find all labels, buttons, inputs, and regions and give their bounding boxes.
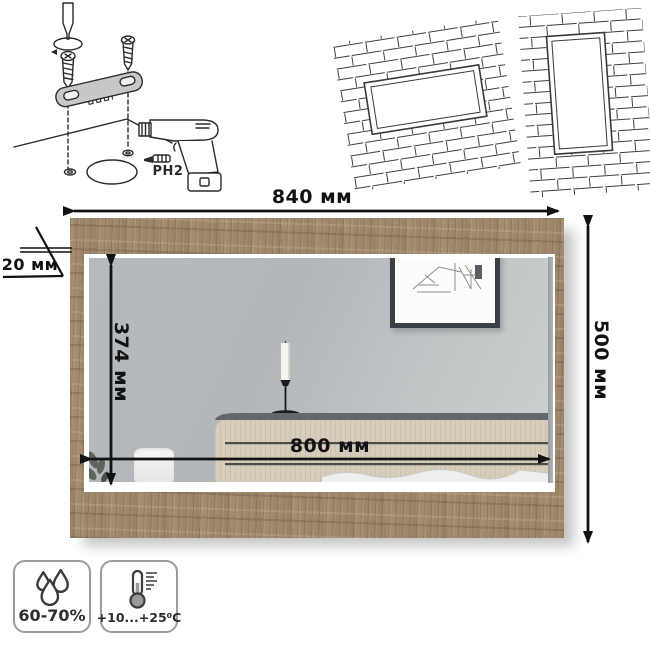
dimension-overall-width: 840 мм [232, 186, 392, 208]
product-diagram: 840 мм 500 мм 374 мм 800 мм 20 мм PH2 60… [0, 0, 650, 650]
temperature-badge: +10...+25⁰C [100, 560, 178, 633]
drill-bit-label: PH2 [146, 164, 190, 179]
humidity-value: 60-70% [18, 606, 85, 625]
dimension-frame-depth: 20 мм [1, 256, 59, 274]
humidity-badge: 60-70% [13, 560, 91, 633]
water-drops-icon [30, 569, 74, 606]
dimension-glass-width: 800 мм [250, 435, 410, 457]
temperature-value: +10...+25⁰C [97, 610, 182, 625]
thermometer-icon [117, 569, 161, 609]
dimension-lines [0, 0, 650, 650]
dimension-overall-height: 500 мм [590, 316, 612, 404]
dimension-glass-height: 374 мм [110, 318, 132, 406]
